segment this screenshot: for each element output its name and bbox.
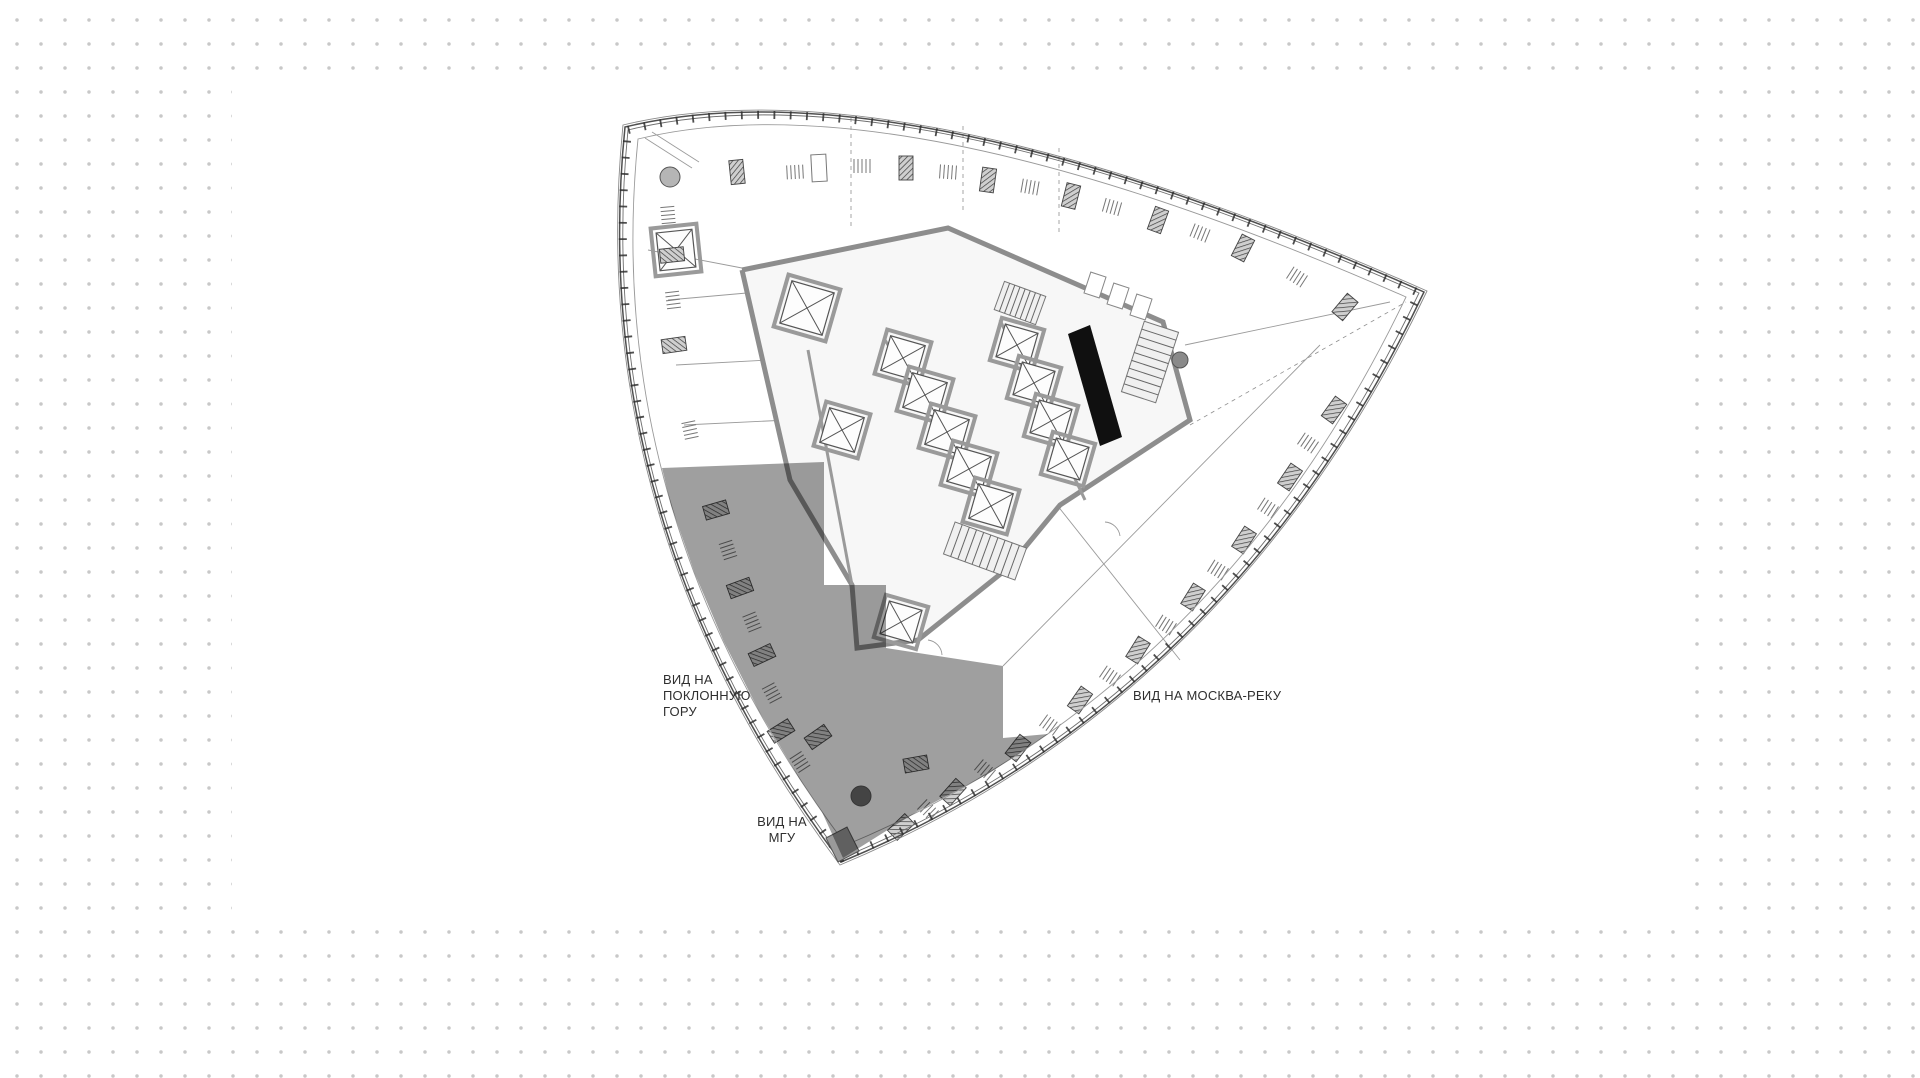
radiator [1099,666,1120,687]
radiator [854,159,870,173]
column [661,336,687,353]
label-line: ВИД НА МОСКВА-РЕКУ [1133,688,1281,704]
radiator [1257,498,1278,518]
elevator-shaft [774,275,841,342]
column [1181,583,1206,611]
radiator [665,291,681,309]
label-line: ВИД НА [663,672,751,688]
column [979,167,996,193]
column [1277,463,1302,491]
column [1332,293,1358,320]
radiator [1102,198,1121,216]
label-view-moskva: ВИД НА МОСКВА-РЕКУ [1133,688,1281,704]
column [729,159,745,184]
radiator [787,165,804,180]
radiator [660,206,675,223]
column-circle [1172,352,1188,368]
floorplan-drawing [0,0,1920,1078]
radiator [1190,224,1210,243]
label-line: МГУ [740,830,824,846]
column [1147,206,1168,233]
radiator [1297,433,1318,454]
column [659,247,684,263]
label-line: ПОКЛОННУЮ [663,688,751,704]
radiator [1286,267,1307,287]
radiator [681,421,698,440]
radiator [940,164,957,179]
radiator [1156,615,1177,635]
column [899,156,913,180]
column-circle [660,167,680,187]
column [1231,234,1254,262]
column [1061,183,1080,210]
label-line: ВИД НА [740,814,824,830]
column [1321,396,1346,424]
column [1232,526,1257,554]
column [1126,636,1151,664]
label-line: ГОРУ [663,704,751,720]
label-view-poklonnaya: ВИД НА ПОКЛОННУЮ ГОРУ [663,672,751,720]
radiator [1021,179,1039,196]
radiator [1208,560,1229,580]
label-view-msu: ВИД НА МГУ [740,814,824,846]
